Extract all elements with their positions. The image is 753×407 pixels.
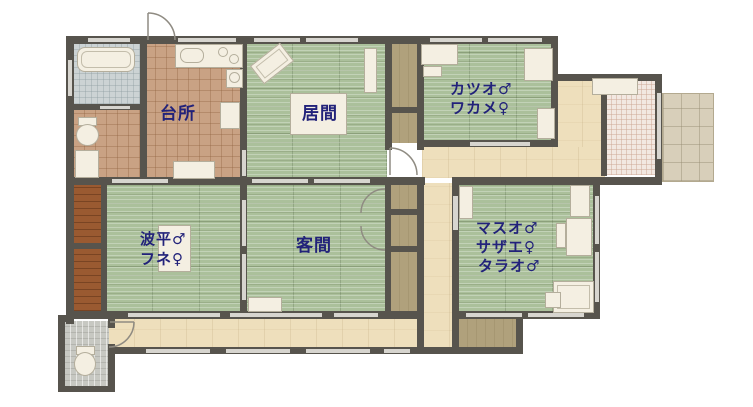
tarao-label: タラオ♂ [478, 257, 540, 275]
katsuo-label: カツオ♂ [450, 80, 512, 98]
kitchen-table [173, 161, 215, 179]
sazae-label: サザエ♀ [476, 238, 536, 256]
katsuo-chest [537, 108, 555, 139]
katsuo-chair [423, 66, 442, 77]
guest-label: 客間 [296, 236, 332, 256]
masuo-label: マスオ♂ [476, 219, 538, 237]
wakame-label: ワカメ♀ [450, 99, 510, 117]
fune-label: フネ♀ [140, 250, 184, 268]
masuo-shelf-left [459, 186, 473, 219]
katsuo-bed [524, 48, 553, 81]
living-side-shelf [364, 48, 377, 93]
toilet-bowl-washroom [76, 124, 99, 146]
stove-burner-1 [218, 47, 228, 57]
kitchen-label: 台所 [160, 104, 196, 124]
katsuo-desk [421, 44, 458, 65]
living-label: 居間 [302, 104, 338, 124]
bathtub [77, 47, 135, 72]
stove-burner-2 [229, 54, 239, 64]
masuo-desk [566, 218, 592, 256]
kitchen-fixture-basin [229, 72, 240, 83]
masuo-shelf-top [570, 185, 590, 217]
shoe-cabinet [592, 78, 638, 95]
floor-plan: 台所 居間 客間 カツオ♂ ワカメ♀ 波平♂ フネ♀ マスオ♂ サザエ♀ タラオ… [0, 0, 753, 407]
washroom-cabinet [75, 150, 99, 178]
toilet-bowl-wc [74, 352, 96, 376]
namihei-label: 波平♂ [140, 230, 186, 248]
guest-cushion [248, 297, 282, 312]
kitchen-sink [180, 48, 204, 63]
masuo-chair [556, 223, 566, 248]
refrigerator [220, 102, 240, 129]
masuo-side-table [545, 292, 561, 308]
